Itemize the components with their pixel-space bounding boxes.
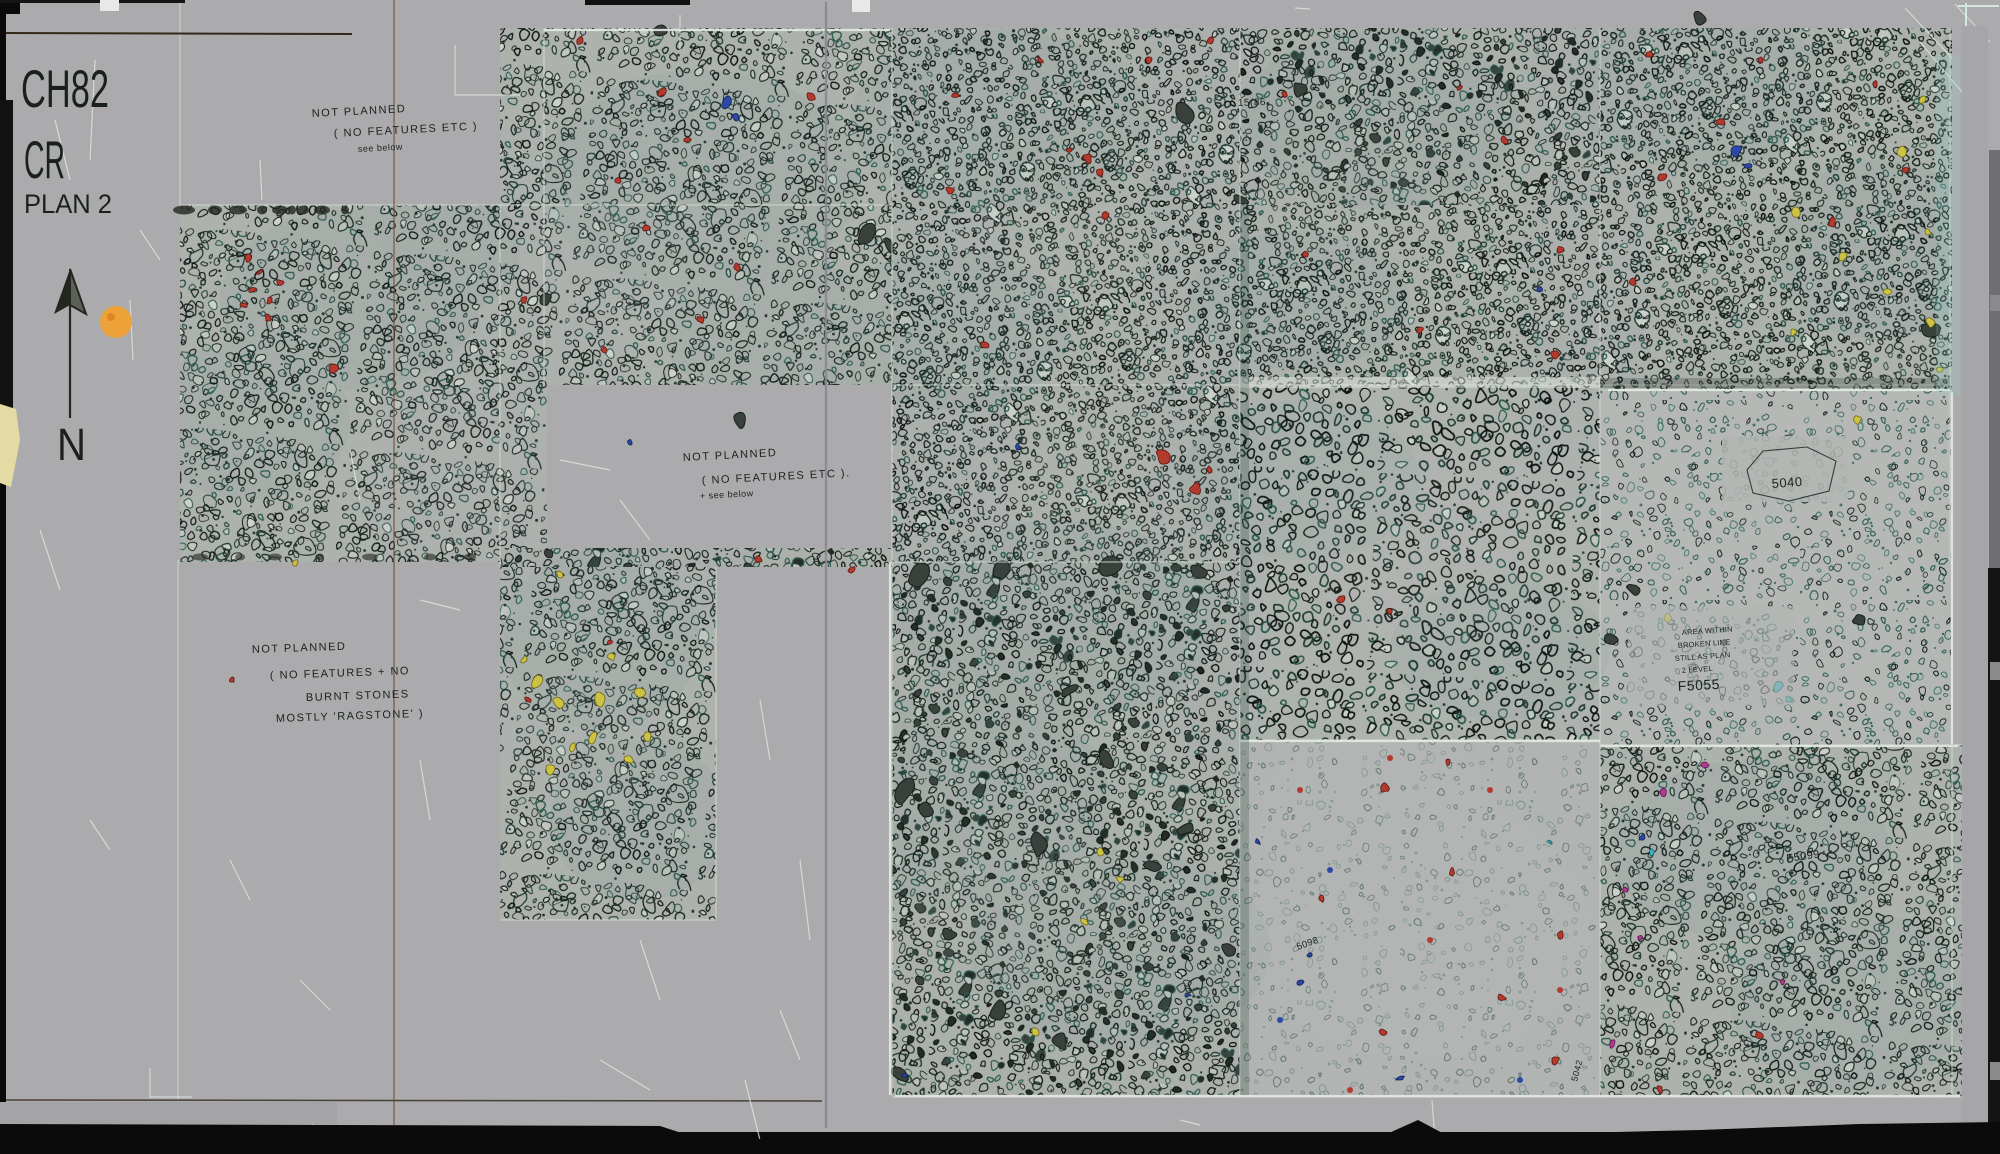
svg-text:PLAN 2: PLAN 2 (24, 189, 112, 219)
svg-text:CR: CR (24, 131, 65, 190)
svg-text:N: N (57, 419, 86, 470)
svg-text:CH82: CH82 (21, 60, 109, 119)
svg-text:F5055: F5055 (1677, 676, 1720, 694)
svg-text:5040: 5040 (1771, 474, 1803, 491)
svg-text:15(86: 15(86 (1238, 97, 1266, 109)
